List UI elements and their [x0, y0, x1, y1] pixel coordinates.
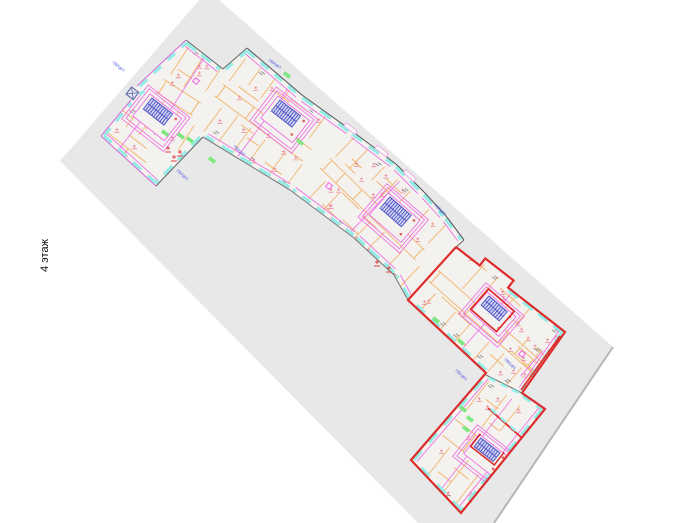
- svg-text:4 этаж: 4 этаж: [39, 238, 51, 272]
- svg-text:ПВХдв1: ПВХдв1: [111, 60, 126, 73]
